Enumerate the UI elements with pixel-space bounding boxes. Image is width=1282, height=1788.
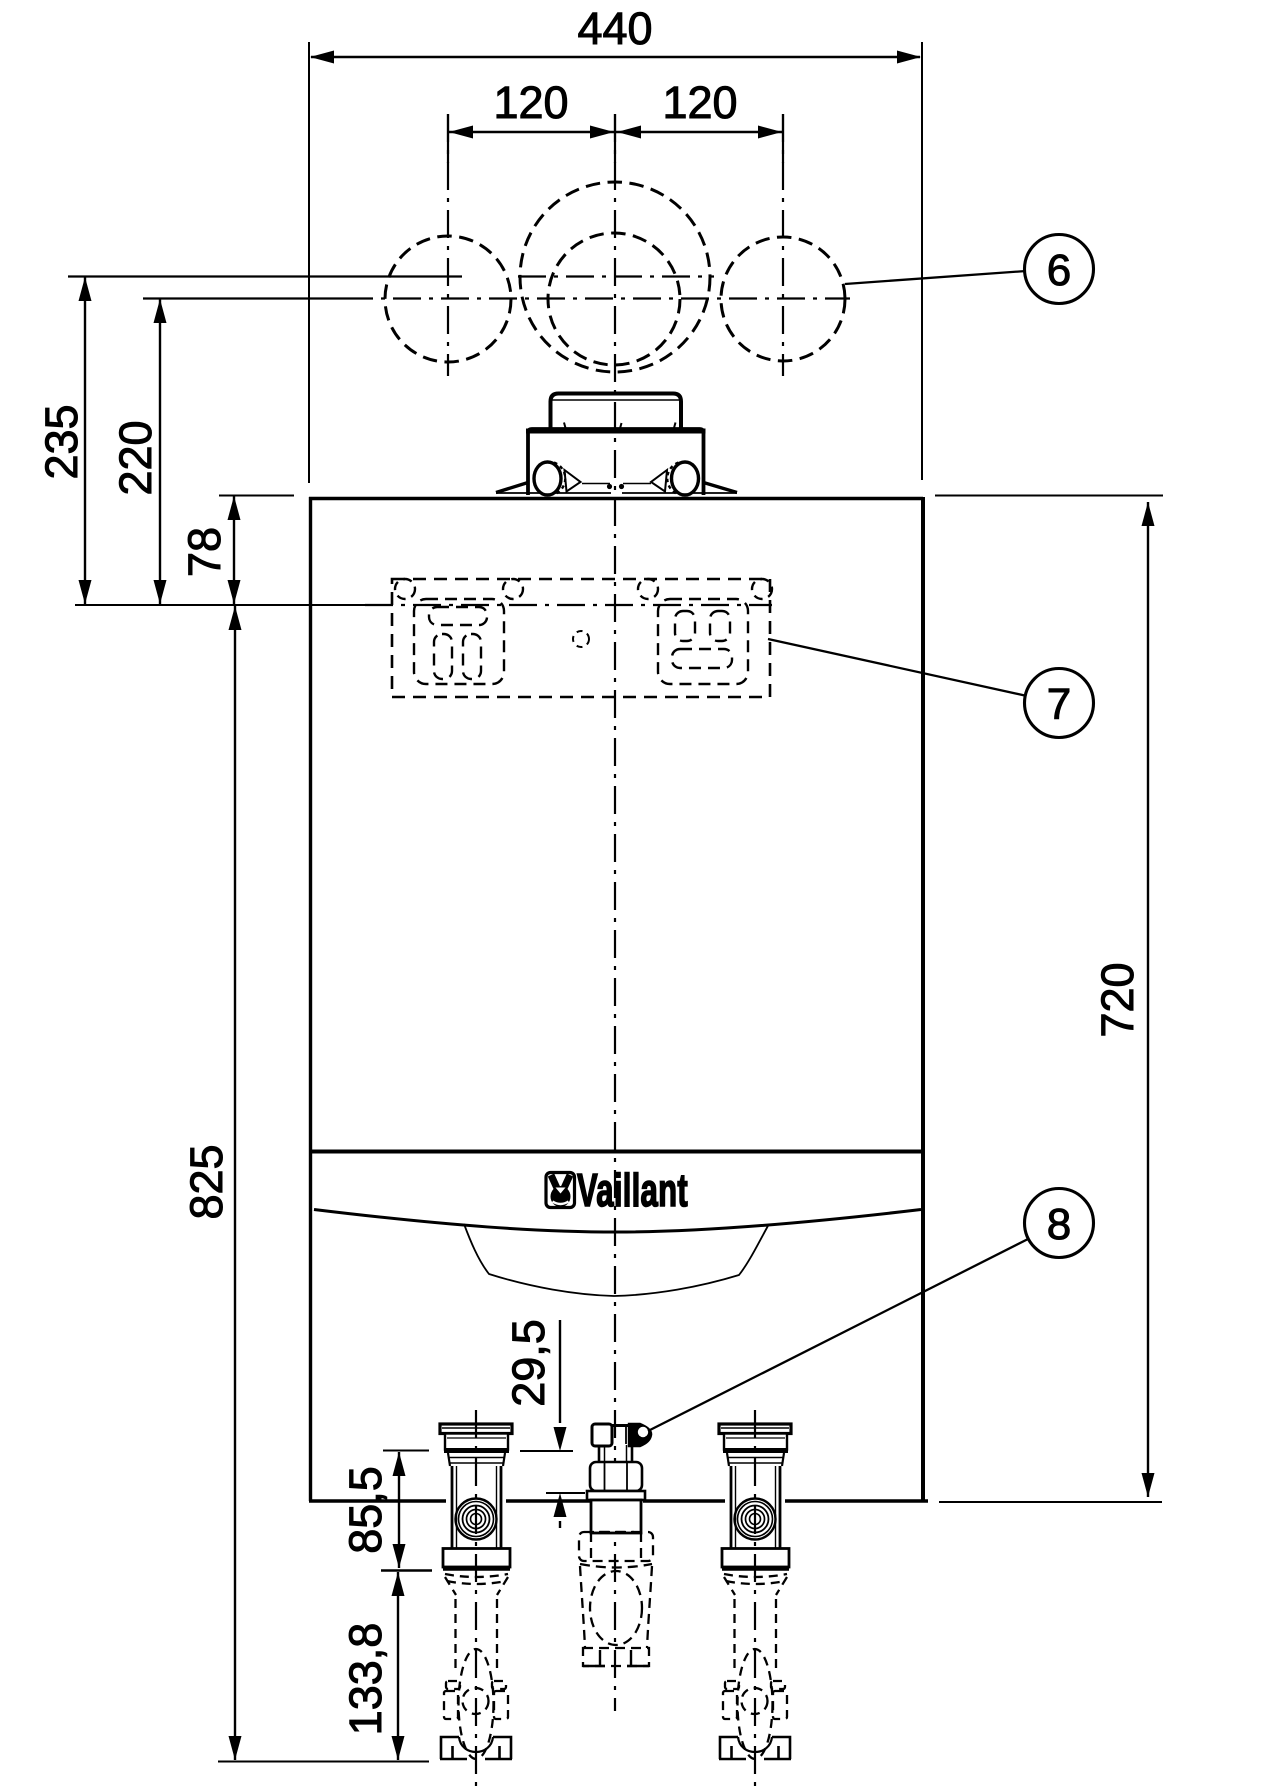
svg-text:78: 78 <box>179 527 230 577</box>
svg-text:235: 235 <box>36 404 87 479</box>
svg-text:85,5: 85,5 <box>340 1466 391 1554</box>
svg-text:440: 440 <box>577 3 652 54</box>
svg-text:Vaillant: Vaillant <box>577 1165 688 1217</box>
svg-text:7: 7 <box>1047 680 1071 729</box>
svg-text:220: 220 <box>110 420 161 495</box>
svg-text:120: 120 <box>662 77 737 128</box>
svg-text:8: 8 <box>1047 1200 1071 1249</box>
svg-text:133,8: 133,8 <box>340 1623 391 1736</box>
svg-text:6: 6 <box>1047 246 1071 295</box>
svg-text:825: 825 <box>181 1144 232 1219</box>
svg-text:120: 120 <box>493 77 568 128</box>
svg-text:29,5: 29,5 <box>503 1319 554 1407</box>
svg-text:720: 720 <box>1092 962 1143 1037</box>
